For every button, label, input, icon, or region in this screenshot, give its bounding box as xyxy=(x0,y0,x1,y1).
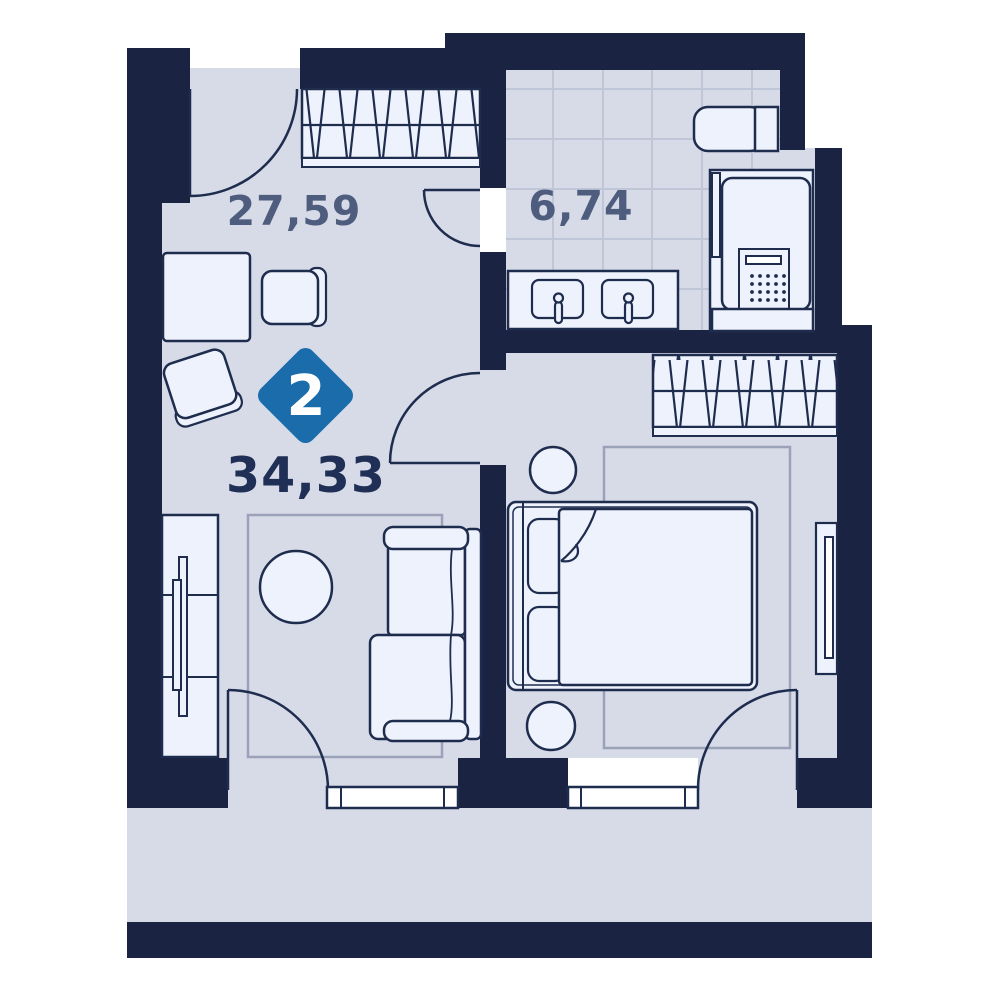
wardrobe-rail xyxy=(302,158,480,167)
sofa-armrest-bottom xyxy=(384,721,468,741)
toilet-bowl xyxy=(694,107,764,151)
washing-machine-slot xyxy=(746,256,781,264)
toilet-tank xyxy=(755,107,778,151)
blanket xyxy=(559,509,752,685)
desk-chair xyxy=(262,268,326,326)
washing-machine xyxy=(710,170,813,331)
faucet-handle xyxy=(625,302,632,323)
bedroom-door-floor xyxy=(480,370,506,465)
sofa-cushion-top xyxy=(388,545,465,635)
sink-left xyxy=(532,280,583,323)
desk xyxy=(163,253,250,341)
bed xyxy=(508,502,757,690)
sofa-back xyxy=(465,529,481,739)
coffee-table xyxy=(260,551,332,623)
bedroom-window xyxy=(568,787,698,808)
wardrobe-bedroom xyxy=(653,355,837,436)
wardrobe-living-room xyxy=(302,89,480,167)
nightstand-bottom xyxy=(527,702,575,750)
bedroom-balcony-opening-floor xyxy=(698,758,797,808)
faucet-handle xyxy=(555,302,562,323)
floor-plan: 2 27,59 6,74 34,33 xyxy=(0,0,1000,1000)
toilet xyxy=(694,107,778,151)
sink-right xyxy=(602,280,653,323)
bathroom-area-label: 6,74 xyxy=(528,182,633,230)
wardrobe-rail xyxy=(653,427,837,436)
floor-plan-canvas: 2 27,59 6,74 34,33 xyxy=(0,0,1000,1000)
tv-panel xyxy=(173,580,181,690)
living-room-area-label: 27,59 xyxy=(227,187,362,235)
faucet xyxy=(624,294,633,303)
balcony-edge-band xyxy=(127,922,872,958)
balcony-floor xyxy=(127,808,872,922)
faucet xyxy=(554,294,563,303)
sofa-armrest-top xyxy=(384,527,468,549)
tv-stand xyxy=(162,515,218,757)
nightstand-top xyxy=(530,447,576,493)
washing-machine-base xyxy=(712,309,813,331)
living-room-window xyxy=(327,787,458,808)
bedroom-closet xyxy=(816,523,837,674)
total-area-label: 34,33 xyxy=(226,447,386,504)
sink-counter xyxy=(508,271,678,329)
rooms-count-value: 2 xyxy=(287,364,326,429)
